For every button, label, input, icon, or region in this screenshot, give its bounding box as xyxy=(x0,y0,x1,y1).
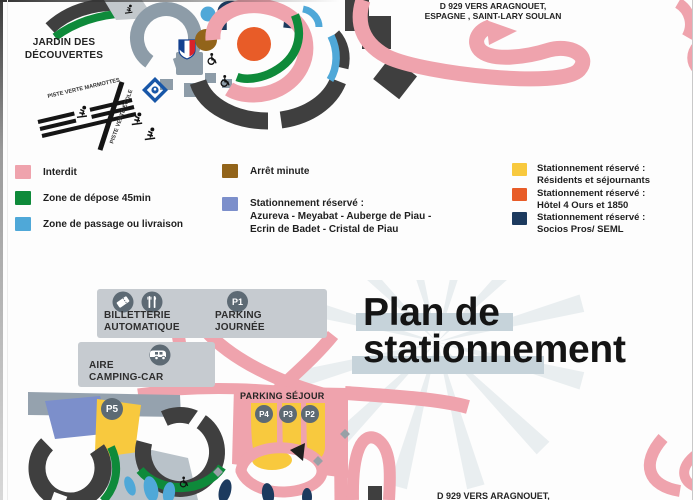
photo-edge-left xyxy=(0,0,3,500)
jardin-line2: DÉCOUVERTES xyxy=(8,50,120,63)
photo-edge-top xyxy=(0,0,340,2)
camping-car-box: AIRE CAMPING-CAR xyxy=(78,342,215,387)
legend-item-socios: Stationnement réservé : Socios Pros/ SEM… xyxy=(512,212,645,235)
billetterie-label-line1: BILLETTERIE xyxy=(104,310,171,322)
legend-swatch xyxy=(15,165,31,179)
legend-swatch xyxy=(15,191,31,205)
parking-map-page: PISTE VERTE MARMOTTES PISTE VERTE ÉCOLE xyxy=(0,0,700,500)
legend-label: Hôtel 4 Ours et 1850 xyxy=(537,200,645,212)
legend-label: Arrêt minute xyxy=(250,166,309,177)
direction-arrow-icon xyxy=(486,20,517,45)
legend-label: Azureva - Meyabat - Auberge de Piau - xyxy=(250,210,431,223)
club-shield-icon xyxy=(179,40,195,59)
legend-swatch xyxy=(512,212,527,225)
legend-label: Stationnement réservé : xyxy=(537,163,650,175)
upper-road-arcs xyxy=(198,6,344,121)
legend-label: Ecrin de Badet - Cristal de Piau xyxy=(250,223,431,236)
wheelchair-icon xyxy=(208,53,216,64)
camper-icon xyxy=(149,344,171,366)
legend-label: Stationnement réservé : xyxy=(537,212,645,224)
page-margin-right xyxy=(693,0,700,500)
d929-label-top: D 929 VERS ARAGNOUET, ESPAGNE , SAINT-LA… xyxy=(393,1,593,21)
legend-label: Socios Pros/ SEML xyxy=(537,224,645,236)
parking-journee-label-line1: PARKING xyxy=(215,310,262,322)
legend-label: Interdit xyxy=(43,167,77,178)
legend-item-arret-minute: Arrêt minute xyxy=(222,164,309,178)
p2-badge: P2 xyxy=(301,405,319,423)
legend-item-residents: Stationnement réservé : Résidents et séj… xyxy=(512,163,650,186)
page-crease xyxy=(7,0,8,500)
piste-sign-label: PISTE VERTE MARMOTTES xyxy=(47,77,121,100)
legend-swatch xyxy=(512,163,527,176)
legend-swatch xyxy=(222,197,238,211)
p5-badge: P5 xyxy=(101,398,123,420)
legend-swatch xyxy=(512,188,527,201)
parking-sejour-label: PARKING SÉJOUR xyxy=(240,391,325,401)
p3-badge: P3 xyxy=(279,405,297,423)
page-title-line1: Plan de xyxy=(363,293,500,332)
d929-top-line1: D 929 VERS ARAGNOUET, xyxy=(393,1,593,11)
legend-label: Stationnement réservé : xyxy=(537,188,645,200)
d929-top-line2: ESPAGNE , SAINT-LARY SOULAN xyxy=(393,11,593,21)
legend-item-reserve-hotels: Stationnement réservé : Azureva - Meyaba… xyxy=(222,197,431,236)
skier-icon xyxy=(145,127,155,139)
legend-label: Zone de passage ou livraison xyxy=(43,219,183,230)
jardin-line1: JARDIN DES xyxy=(8,37,120,50)
legend-label: Résidents et séjournants xyxy=(537,175,650,187)
legend-swatch xyxy=(222,164,238,178)
billetterie-parking-box: P1 BILLETTERIE AUTOMATIQUE PARKING JOURN… xyxy=(97,289,327,338)
parking-journee-label-line2: JOURNÉE xyxy=(215,322,265,334)
d929-label-bottom: D 929 VERS ARAGNOUET, xyxy=(437,491,550,500)
page-title-line2: stationnement xyxy=(363,330,626,369)
jardin-decouvertes-label: JARDIN DES DÉCOUVERTES xyxy=(8,37,120,62)
p4-badge: P4 xyxy=(255,405,273,423)
p1-badge: P1 xyxy=(227,291,248,312)
billetterie-label-line2: AUTOMATIQUE xyxy=(104,322,180,334)
upper-map-graphic: PISTE VERTE MARMOTTES PISTE VERTE ÉCOLE xyxy=(0,0,700,163)
legend-item-passage: Zone de passage ou livraison xyxy=(15,217,183,231)
legend-item-hotel4ours: Stationnement réservé : Hôtel 4 Ours et … xyxy=(512,188,645,211)
legend-label: Stationnement réservé : xyxy=(250,197,431,210)
legend-label: Zone de dépose 45min xyxy=(43,193,151,204)
legend-item-interdit: Interdit xyxy=(15,165,77,179)
legend-item-depose: Zone de dépose 45min xyxy=(15,191,151,205)
aire-label-line2: CAMPING-CAR xyxy=(89,372,163,384)
sejour-ring-road xyxy=(241,448,322,492)
legend-swatch xyxy=(15,217,31,231)
aire-label-line1: AIRE xyxy=(89,360,114,372)
